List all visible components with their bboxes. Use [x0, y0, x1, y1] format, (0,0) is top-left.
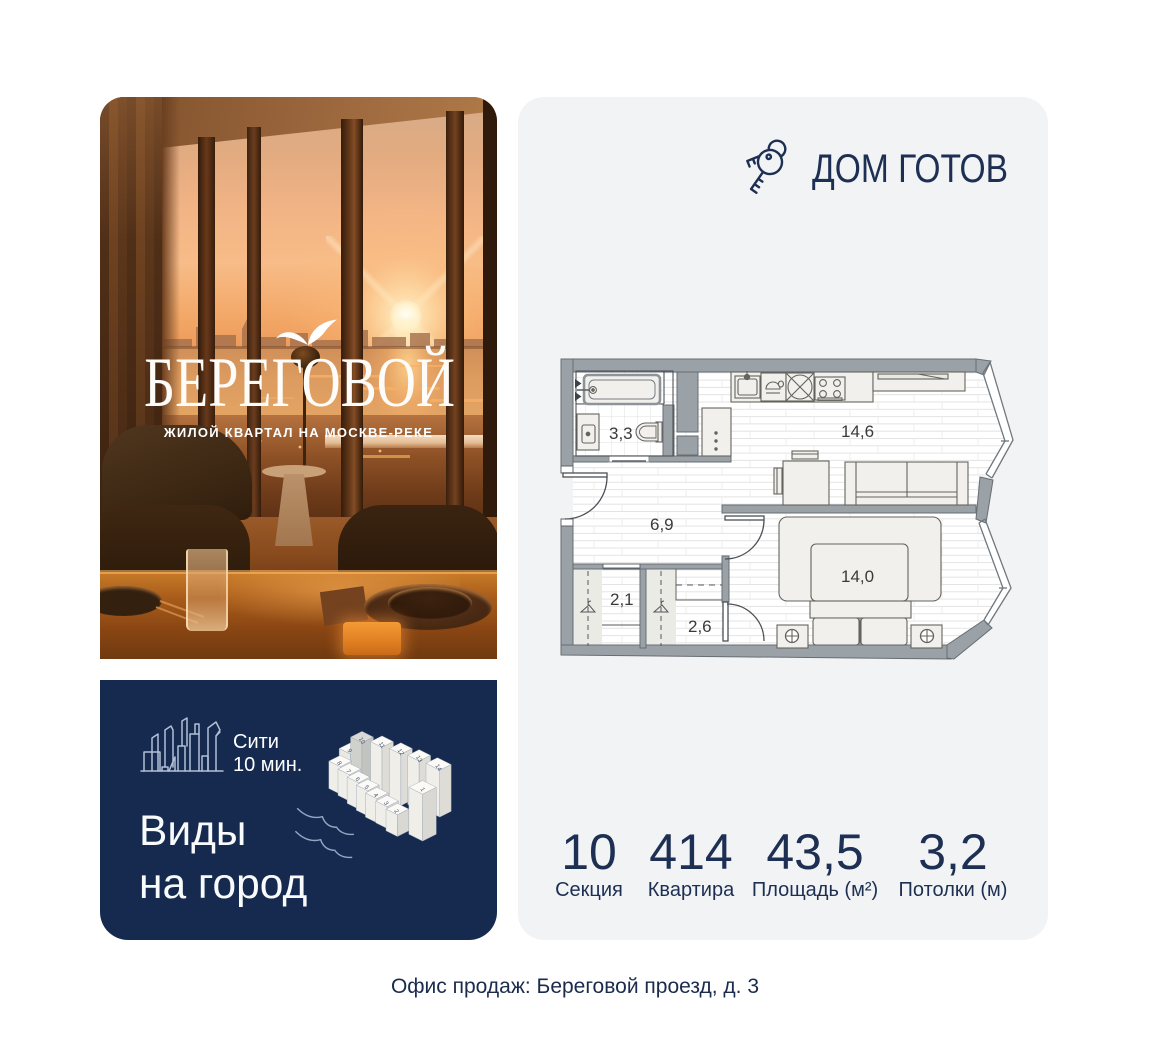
- svg-text:ДОМ ГОТОВ: ДОМ ГОТОВ: [812, 147, 1008, 191]
- svg-text:3,3: 3,3: [609, 424, 633, 443]
- svg-text:6,9: 6,9: [650, 515, 674, 534]
- svg-text:2,1: 2,1: [610, 590, 634, 609]
- svg-text:БЕРЕГОВОЙ: БЕРЕГОВОЙ: [144, 344, 455, 417]
- svg-text:14,6: 14,6: [841, 422, 874, 441]
- svg-text:14,0: 14,0: [841, 567, 874, 586]
- svg-text:2,6: 2,6: [688, 617, 712, 636]
